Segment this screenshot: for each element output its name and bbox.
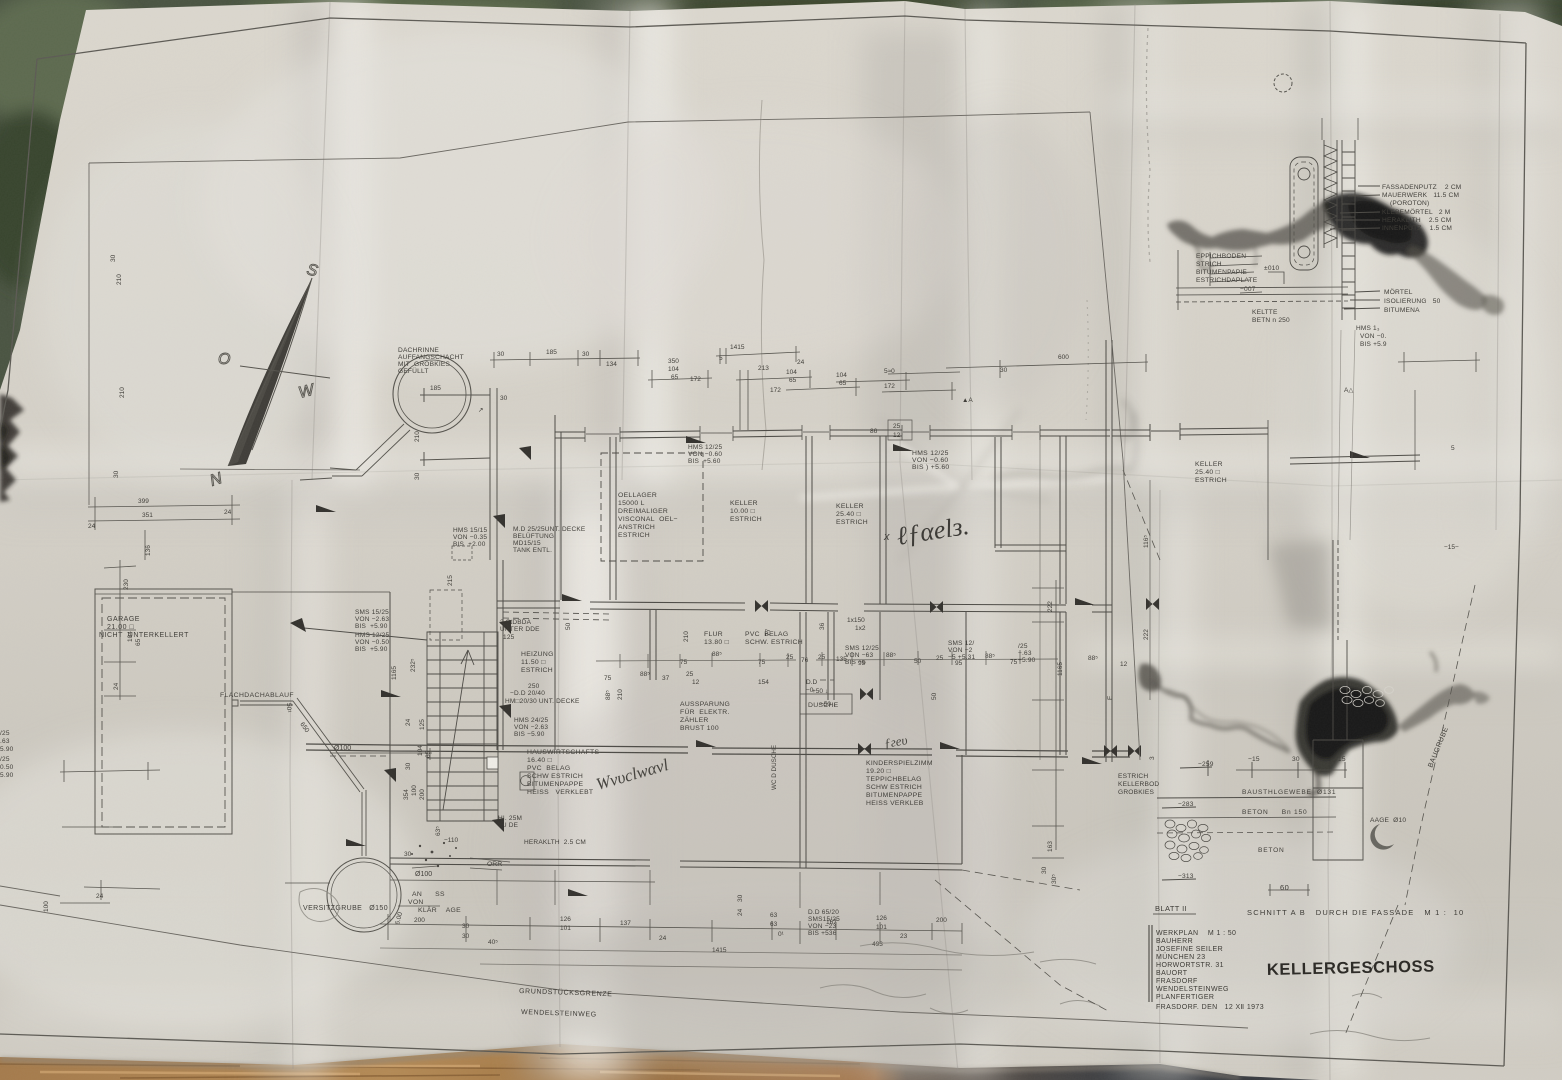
svg-text:KELLERGESCHOSS: KELLERGESCHOSS xyxy=(1267,957,1435,979)
svg-text:BLATT II: BLATT II xyxy=(1155,904,1187,913)
svg-text:BAUORT: BAUORT xyxy=(1156,970,1188,977)
svg-text:WENDELSTEINWEG: WENDELSTEINWEG xyxy=(1156,986,1229,993)
svg-text:PLANFERTIGER: PLANFERTIGER xyxy=(1156,994,1214,1001)
svg-text:MÜNCHEN 23: MÜNCHEN 23 xyxy=(1156,953,1206,961)
svg-text:BAUHERR: BAUHERR xyxy=(1156,938,1193,945)
svg-text:WERKPLAN M 1 : 50: WERKPLAN M 1 : 50 xyxy=(1156,930,1236,937)
svg-text:FRASDORF: FRASDORF xyxy=(1156,978,1198,985)
svg-text:HORWORTSTR. 31: HORWORTSTR. 31 xyxy=(1156,962,1224,969)
svg-text:JOSEFINE SEILER: JOSEFINE SEILER xyxy=(1156,946,1223,953)
svg-text:60: 60 xyxy=(1280,883,1289,892)
svg-text:SCHNITT A B DURCH DIE FAS: SCHNITT A B DURCH DIE FASSADE M 1 : 10 xyxy=(1247,908,1464,917)
svg-text:FRASDORF. DEN 12 XⅡ 1973: FRASDORF. DEN 12 XⅡ 1973 xyxy=(1156,1004,1264,1011)
